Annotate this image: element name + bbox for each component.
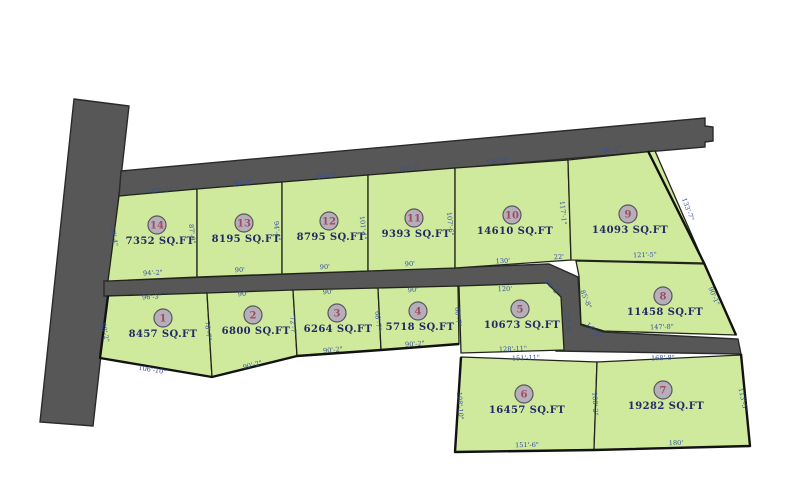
lot-sqft-6: 16457 SQ.FT — [489, 405, 565, 416]
lot-sqft-5: 10673 SQ.FT — [484, 320, 560, 331]
dim-label: 90' — [408, 286, 419, 295]
dim-label: 90'-2" — [405, 339, 425, 348]
lot-number-5: 5 — [517, 305, 524, 316]
dim-label: 108'-2" — [590, 392, 599, 416]
dim-label: 90' — [238, 290, 249, 299]
lot-number-11: 11 — [407, 214, 421, 225]
lot-number-2: 2 — [250, 311, 257, 322]
dim-label: 151'-6" — [515, 441, 539, 449]
lot-number-3: 3 — [334, 309, 341, 320]
dim-label: 90' — [235, 266, 246, 275]
dim-label: 90' — [320, 263, 331, 272]
lot-sqft-2: 6800 SQ.FT — [222, 326, 291, 337]
lot-sqft-12: 8795 SQ.FT — [297, 232, 366, 243]
dim-label: 94'-2" — [143, 268, 163, 277]
dim-label: 90' — [323, 288, 334, 297]
lot-number-8: 8 — [660, 292, 667, 303]
lot-number-1: 1 — [160, 314, 167, 325]
dim-label: 151'-11" — [512, 354, 540, 363]
lot-sqft-13: 8195 SQ.FT — [212, 234, 281, 245]
lot-parcel-5 — [459, 283, 564, 353]
dim-label: 90'-2" — [323, 345, 343, 355]
lot-sqft-3: 6264 SQ.FT — [304, 324, 373, 335]
dim-label: 96'-3" — [142, 292, 162, 301]
lot-number-7: 7 — [660, 386, 667, 397]
dim-label: 130' — [495, 257, 510, 266]
dim-label: 120' — [498, 285, 513, 294]
dim-label: 147'-8" — [650, 323, 674, 332]
lot-sqft-8: 11458 SQ.FT — [627, 307, 703, 318]
lot-sqft-11: 9393 SQ.FT — [382, 229, 451, 240]
lot-sqft-14: 7352 SQ.FT — [126, 236, 195, 247]
dim-label: 121'-5" — [633, 251, 657, 260]
dim-label: 180' — [669, 439, 684, 447]
lot-sqft-1: 8457 SQ.FT — [129, 329, 198, 340]
lot-sqft-10: 14610 SQ.FT — [477, 226, 553, 237]
lot-sqft-4: 5718 SQ.FT — [386, 322, 455, 333]
lot-number-14: 14 — [150, 221, 164, 232]
dim-label: 128'-11" — [499, 345, 527, 354]
lot-sqft-9: 14093 SQ.FT — [592, 225, 668, 236]
dim-label: 168'-8" — [651, 354, 675, 363]
plat-map: 107'-3" 90'-3" 90'-3" 90'-3" 130'-4" 90'… — [0, 0, 800, 500]
lot-number-13: 13 — [237, 219, 251, 230]
lot-sqft-7: 19282 SQ.FT — [628, 401, 704, 412]
lot-number-4: 4 — [415, 307, 422, 318]
lot-number-9: 9 — [625, 210, 632, 221]
lot-parcel-14 — [108, 189, 197, 281]
lot-number-12: 12 — [322, 217, 336, 228]
plat-drawing: 107'-3" 90'-3" 90'-3" 90'-3" 130'-4" 90'… — [0, 0, 800, 500]
dim-label: 90' — [405, 260, 416, 269]
dim-label: 22' — [554, 253, 565, 262]
lot-number-6: 6 — [521, 390, 528, 401]
lot-number-10: 10 — [505, 211, 519, 222]
